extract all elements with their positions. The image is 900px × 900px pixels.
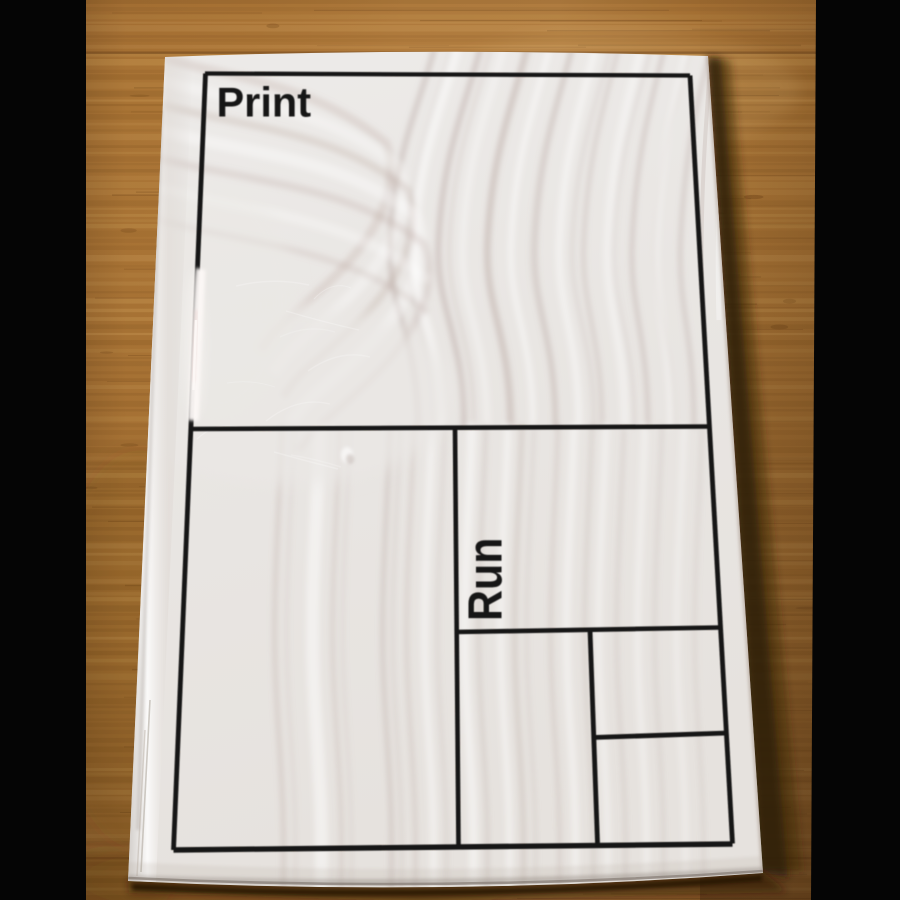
svg-text:Run: Run [458,538,512,621]
svg-text:Print: Print [217,79,312,126]
